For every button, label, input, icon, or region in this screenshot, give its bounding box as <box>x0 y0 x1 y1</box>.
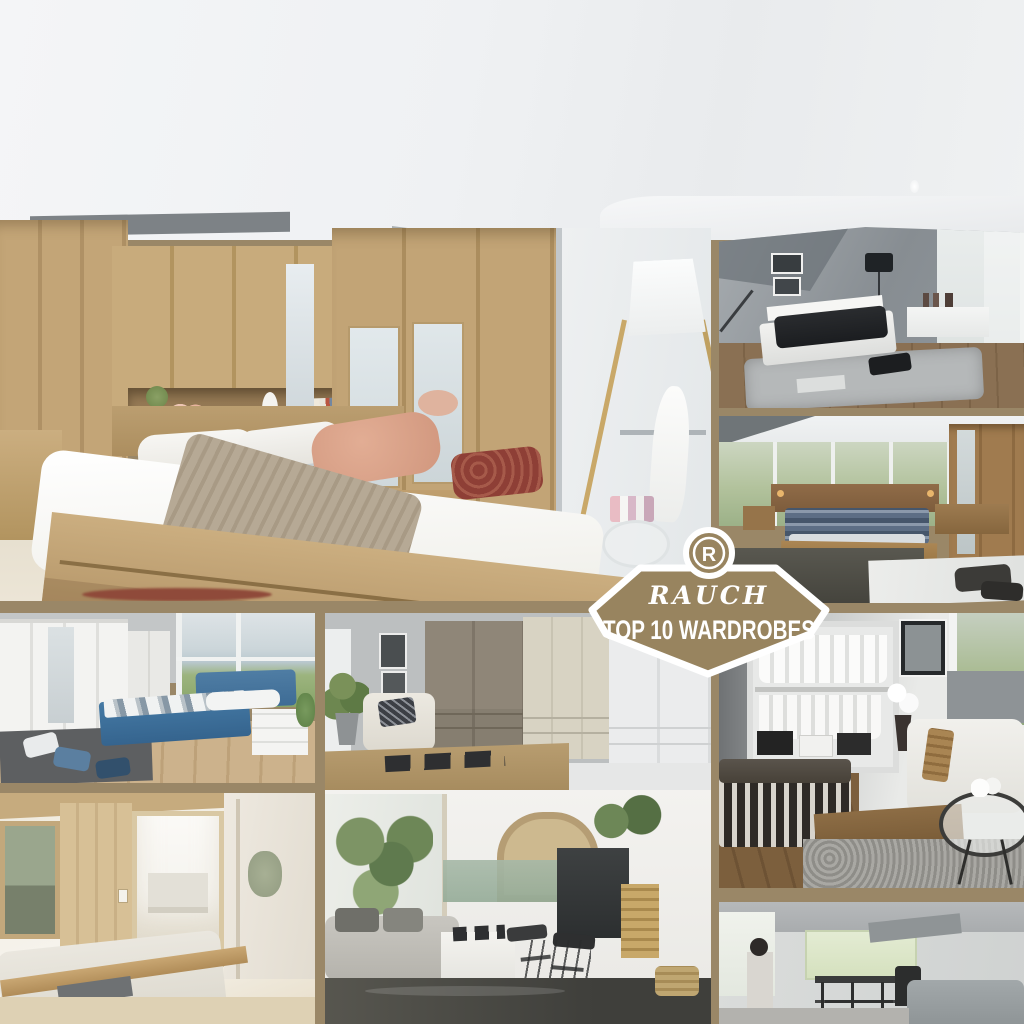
tile-blue-bed <box>0 613 315 783</box>
shelf-plant <box>146 386 168 408</box>
wall-photo-1 <box>379 633 407 669</box>
rug-red-edge <box>82 588 272 601</box>
wall-picture-2 <box>773 277 801 296</box>
white-sideboard <box>907 307 989 337</box>
pillow-red-pattern <box>450 445 544 500</box>
sideboard-wood <box>935 504 1009 534</box>
tile-modern-room <box>719 902 1024 1024</box>
pedestal-object <box>750 938 768 956</box>
armchair-cushion <box>377 697 416 728</box>
wardrobe-mirror-panel <box>48 627 74 723</box>
wardrobe-mirror-strip <box>957 430 975 554</box>
headboard-lamp-right <box>927 490 934 497</box>
floor-strip <box>719 1008 909 1024</box>
floor-cushion-2 <box>980 581 1023 602</box>
pale-floor <box>0 997 315 1024</box>
sideboard-vases <box>923 293 953 307</box>
glass-round-table <box>939 791 1024 857</box>
storage-box-black-2 <box>837 733 871 755</box>
ceiling-light-dot <box>910 180 919 193</box>
badge-title: TOP 10 WARDROBES <box>603 615 815 645</box>
bed-pillows-white <box>206 689 281 711</box>
big-plant-left <box>329 808 433 920</box>
log-store <box>621 884 659 958</box>
storage-box-white <box>799 735 833 757</box>
table-top-items <box>453 925 506 942</box>
tripod-lamp-shade <box>624 258 706 336</box>
dresser-plant <box>296 693 315 727</box>
taupe-drawer-lines <box>425 711 523 741</box>
bench-cushion-top <box>719 759 851 783</box>
storage-box-black-1 <box>757 731 793 755</box>
window-mullion-h <box>176 657 315 661</box>
light-switch <box>118 889 128 903</box>
pedestal <box>747 952 773 1012</box>
cream-drawer-lines <box>523 715 609 747</box>
tile-main-oak-bedroom <box>0 0 711 601</box>
plant-right-top <box>577 790 663 852</box>
badge-brand: RAUCH <box>648 581 770 610</box>
wicker-stool <box>655 966 699 996</box>
floor-reflection <box>365 986 565 996</box>
mirror-pillow-reflection <box>418 390 458 416</box>
tile-living-area <box>325 790 711 1024</box>
sofa-cushion-1 <box>335 908 379 932</box>
grey-divider-panel <box>947 671 1024 723</box>
white-drawer-lines <box>609 725 711 759</box>
tile-pale-bedroom <box>0 793 315 1024</box>
grey-sofa-bottom <box>907 980 1024 1024</box>
tile-grey-bedroom <box>719 227 1024 408</box>
badge-monogram: R <box>702 544 717 566</box>
wall-picture-1 <box>771 253 803 274</box>
framed-photo <box>901 621 945 675</box>
black-lamp-shade <box>865 253 893 272</box>
rauch-badge: R RAUCH TOP 10 WARDROBES <box>580 518 840 688</box>
dark-floor <box>325 978 711 1024</box>
sofa-cushion-2 <box>383 908 423 932</box>
white-floor-right <box>569 763 711 790</box>
doorway-mantel <box>148 873 208 907</box>
table-bottles <box>971 775 1001 797</box>
dark-fireplace <box>557 848 629 938</box>
headboard-lamp-left <box>777 490 784 497</box>
right-plant-hint <box>248 851 282 897</box>
collage-canvas: R RAUCH TOP 10 WARDROBES <box>0 0 1024 1024</box>
framed-artwork <box>0 821 60 939</box>
